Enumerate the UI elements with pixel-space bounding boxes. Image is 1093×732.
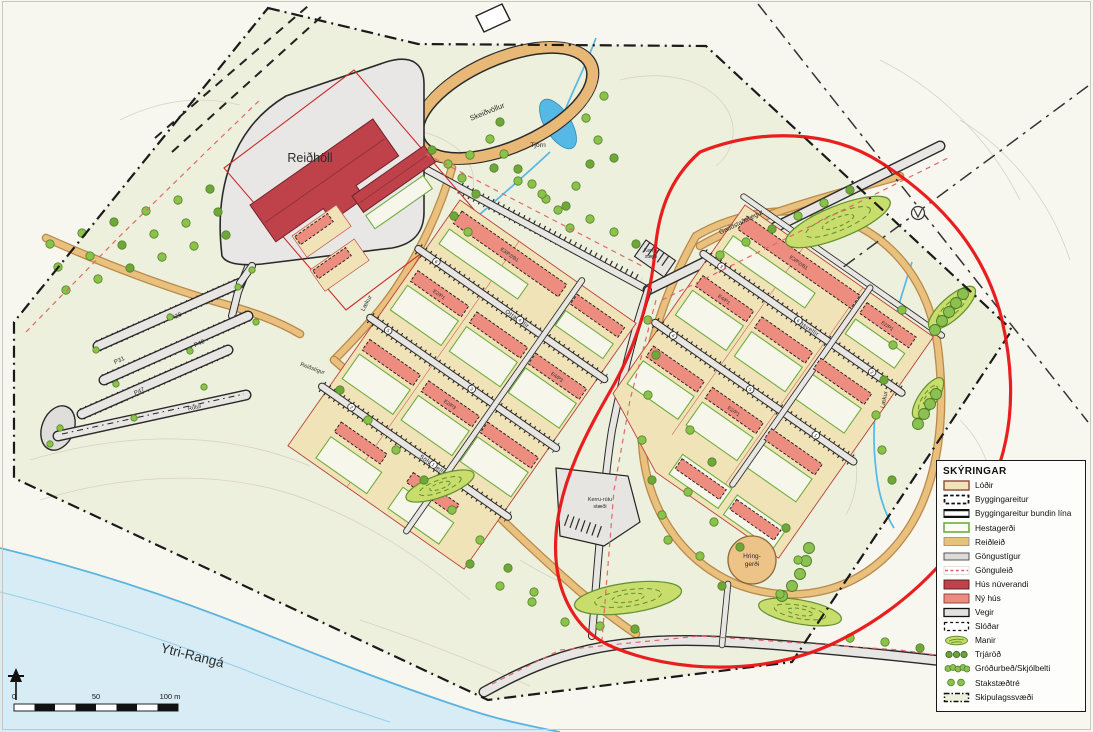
- tree-icon: [336, 386, 344, 394]
- legend: SKÝRINGAR Lóðir Byggingareitur Byggingar…: [936, 460, 1086, 712]
- shrub-icon: [944, 307, 955, 318]
- tree-icon: [190, 242, 198, 250]
- tree-icon: [554, 206, 562, 214]
- tree-icon: [472, 190, 480, 198]
- tree-icon: [586, 160, 594, 168]
- tree-icon: [872, 411, 880, 419]
- tree-icon: [46, 240, 54, 248]
- legend-item-slodar: Slóðar: [943, 621, 1080, 632]
- tree-icon: [428, 146, 436, 154]
- tree-icon: [652, 351, 660, 359]
- legend-swatch-reidleid: [943, 536, 970, 547]
- tree-icon: [466, 151, 474, 159]
- tree-icon: [496, 582, 504, 590]
- tree-icon: [476, 536, 484, 544]
- legend-item-hus-nuverandi: Hús núverandi: [943, 579, 1080, 590]
- tree-icon: [572, 182, 580, 190]
- legend-swatch-ny-hus: [943, 593, 970, 604]
- tree-icon: [878, 446, 886, 454]
- shrub-icon: [951, 298, 962, 309]
- tree-icon: [686, 426, 694, 434]
- tree-icon: [235, 284, 241, 290]
- tree-icon: [86, 252, 94, 260]
- tree-icon: [538, 190, 546, 198]
- legend-swatch-slodar: [943, 621, 970, 632]
- shrub-icon: [931, 389, 942, 400]
- outside-building: [476, 4, 510, 32]
- tree-icon: [582, 114, 590, 122]
- tree-icon: [742, 238, 750, 246]
- legend-item-gonguleid: Gönguleið: [943, 565, 1080, 576]
- tree-icon: [898, 306, 906, 314]
- legend-item-bundin-lina: Byggingareitur bundin lína: [943, 508, 1080, 519]
- legend-swatch-skipulagssvaedi: [943, 692, 970, 703]
- tree-icon: [504, 564, 512, 572]
- tree-icon: [696, 552, 704, 560]
- tree-icon: [684, 488, 692, 496]
- legend-item-stakstaedtre: Stakstæðtré: [943, 677, 1080, 688]
- legend-title: SKÝRINGAR: [943, 466, 1080, 477]
- tree-icon: [167, 314, 173, 320]
- legend-swatch-vegir: [943, 607, 970, 618]
- tree-icon: [110, 218, 118, 226]
- tree-icon: [664, 536, 672, 544]
- legend-item-skipulagssvaedi: Skipulagssvæði: [943, 692, 1080, 703]
- scale-0: 0: [12, 692, 16, 701]
- tree-icon: [113, 381, 119, 387]
- tree-icon: [214, 208, 222, 216]
- label-kerru-2: stæði: [645, 253, 657, 260]
- tree-icon: [94, 275, 102, 283]
- label-tjorn: Tjörn: [530, 142, 546, 149]
- legend-swatch-gonguleid: [943, 565, 970, 576]
- tree-icon: [846, 186, 854, 194]
- legend-swatch-bundin-lina: [943, 508, 970, 519]
- tree-icon: [62, 286, 70, 294]
- label-reidholl: Reiðhöll: [287, 151, 332, 165]
- legend-item-ny-hus: Ný hús: [943, 593, 1080, 604]
- shrub-icon: [795, 569, 806, 580]
- tree-icon: [889, 341, 897, 349]
- tree-icon: [57, 425, 63, 431]
- tree-icon: [776, 590, 784, 598]
- legend-swatch-trjarod: [943, 649, 970, 660]
- tree-icon: [708, 458, 716, 466]
- tree-icon: [710, 518, 718, 526]
- legend-swatch-grodurbed: [943, 663, 970, 674]
- tree-icon: [458, 174, 466, 182]
- tree-icon: [486, 135, 494, 143]
- tree-icon: [794, 556, 802, 564]
- tree-icon: [222, 231, 230, 239]
- tree-icon: [528, 598, 536, 606]
- tree-icon: [716, 251, 724, 259]
- tree-icon: [249, 267, 255, 273]
- tree-icon: [464, 228, 472, 236]
- tree-icon: [392, 446, 400, 454]
- legend-item-byggingareitur: Byggingareitur: [943, 494, 1080, 505]
- tree-icon: [644, 391, 652, 399]
- tree-icon: [632, 240, 640, 248]
- tree-icon: [600, 92, 608, 100]
- label-hringgerdi-2: gerði: [745, 560, 759, 568]
- tree-icon: [126, 264, 134, 272]
- label-kerru-rutu-2: stæði: [593, 503, 606, 510]
- tree-icon: [880, 376, 888, 384]
- tree-icon: [562, 202, 570, 210]
- legend-item-trjarod: Trjáröð: [943, 649, 1080, 660]
- tree-icon: [47, 441, 53, 447]
- tree-icon: [514, 177, 522, 185]
- tree-icon: [530, 588, 538, 596]
- legend-item-reidleid: Reiðleið: [943, 536, 1080, 547]
- shrub-icon: [787, 581, 798, 592]
- shrub-icon: [913, 419, 924, 430]
- tree-icon: [561, 618, 569, 626]
- legend-swatch-byggingareitur: [943, 494, 970, 505]
- shrub-icon: [919, 409, 930, 420]
- label-hringgerdi-1: Hring-: [743, 553, 761, 560]
- tree-icon: [514, 165, 522, 173]
- legend-swatch-hus-nuverandi: [943, 579, 970, 590]
- tree-icon: [631, 625, 639, 633]
- legend-item-lodir: Lóðir: [943, 480, 1080, 491]
- label-kerru-rutu-1: Kerru-rútu: [588, 497, 612, 503]
- tree-icon: [881, 638, 889, 646]
- legend-swatch-manir: [943, 635, 970, 646]
- tree-icon: [794, 212, 802, 220]
- tree-icon: [768, 225, 776, 233]
- tree-icon: [364, 416, 372, 424]
- tree-icon: [420, 476, 428, 484]
- tree-icon: [131, 415, 137, 421]
- legend-item-gongustigur: Göngustígur: [943, 551, 1080, 562]
- tree-icon: [496, 118, 504, 126]
- shrub-icon: [930, 325, 941, 336]
- tree-icon: [150, 230, 158, 238]
- tree-icon: [782, 524, 790, 532]
- round-pen-hringgerdi: [728, 536, 776, 584]
- legend-item-grodurbed: Gróðurbeð/Skjólbelti: [943, 663, 1080, 674]
- tree-icon: [610, 154, 618, 162]
- shrub-icon: [804, 543, 815, 554]
- tree-icon: [174, 196, 182, 204]
- tree-icon: [888, 476, 896, 484]
- tree-icon: [206, 185, 214, 193]
- tree-icon: [610, 228, 618, 236]
- tree-icon: [182, 219, 190, 227]
- tree-icon: [450, 212, 458, 220]
- tree-icon: [466, 560, 474, 568]
- tree-icon: [638, 436, 646, 444]
- tree-icon: [500, 150, 508, 158]
- shrub-icon: [925, 399, 936, 410]
- legend-swatch-lodir: [943, 480, 970, 491]
- legend-item-manir: Manir: [943, 635, 1080, 646]
- tree-icon: [820, 199, 828, 207]
- tree-icon: [718, 582, 726, 590]
- tree-icon: [118, 241, 126, 249]
- tree-icon: [201, 384, 207, 390]
- shrub-icon: [937, 316, 948, 327]
- legend-item-vegir: Vegir: [943, 607, 1080, 618]
- tree-icon: [253, 319, 259, 325]
- tree-icon: [736, 543, 744, 551]
- tree-icon: [490, 164, 498, 172]
- scale-100: 100 m: [160, 692, 181, 701]
- tree-icon: [448, 506, 456, 514]
- legend-item-hestagerdi: Hestagerði: [943, 522, 1080, 533]
- shrub-icon: [958, 289, 969, 300]
- tree-icon: [916, 644, 924, 652]
- tree-icon: [648, 476, 656, 484]
- legend-swatch-stakstaedtre: [943, 677, 970, 688]
- legend-swatch-hestagerdi: [943, 522, 970, 533]
- tree-icon: [528, 180, 536, 188]
- tree-icon: [187, 348, 193, 354]
- tree-icon: [594, 136, 602, 144]
- tree-icon: [93, 347, 99, 353]
- scanned-site-plan-page: P28 P31 P40 P47 Rútur: [0, 0, 1093, 732]
- tree-icon: [158, 253, 166, 261]
- tree-icon: [658, 511, 666, 519]
- legend-swatch-gongustigur: [943, 551, 970, 562]
- site-plan-map: P28 P31 P40 P47 Rútur: [0, 0, 1093, 732]
- scale-50: 50: [92, 692, 100, 701]
- utility-marker-icon: [912, 207, 925, 220]
- tree-icon: [586, 215, 594, 223]
